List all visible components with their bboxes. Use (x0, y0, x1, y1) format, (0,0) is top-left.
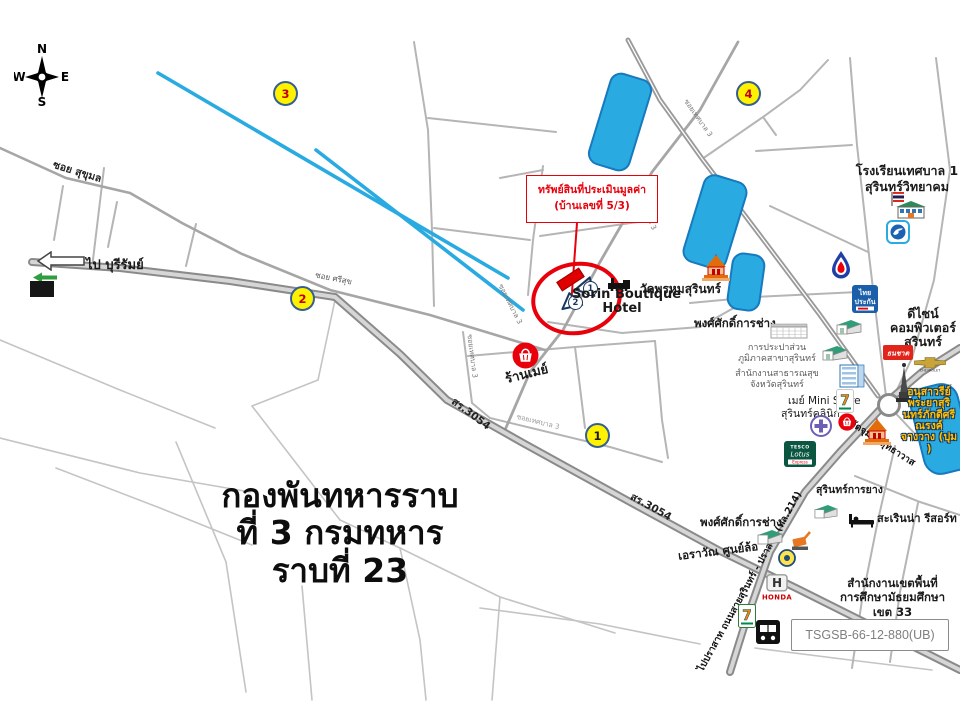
thai-insurance-line1: ไทย (858, 288, 871, 297)
long-building-icon (770, 323, 808, 339)
monument-line5: จางวาง (ปุม (894, 432, 960, 443)
thai-insurance-line2: ประกัน (855, 298, 876, 306)
photo-marker-3: 3 (273, 81, 298, 106)
label-military-base: กองพันทหารราบ ที่ 3 กรมทหาร ราบที่ 23 (160, 477, 520, 589)
thanachart-text: ธนชาต (887, 350, 910, 358)
compass-e: E (61, 70, 69, 84)
label-surin-tire: สุรินทร์การยาง (816, 484, 883, 497)
appraisal-callout-box: ทรัพย์สินที่ประเมินมูลค่า (บ้านเลขที่ 5/… (526, 175, 658, 223)
reference-code: TSGSB-66-12-880(UB) (805, 628, 934, 642)
edu-line1: สำนักงานเขตพื้นที่ (820, 576, 960, 590)
compass-rose-icon: N W E S (14, 42, 70, 108)
clinic-cross-icon (810, 415, 832, 437)
military-line1: กองพันทหารราบ (160, 477, 520, 514)
warehouse-icon-1 (836, 318, 862, 336)
label-design-computer: ดีไซน์ คอมพิวเตอร์ สุรินทร์ (882, 307, 960, 348)
school-icon (888, 190, 928, 220)
label-resort: สะเรินน่า รีสอร์ท (877, 512, 957, 525)
bus-stop-marker-icon (30, 281, 54, 297)
thanachart-sign-icon: ธนชาต (883, 345, 913, 360)
honda-h-glyph: H (772, 576, 782, 590)
school-line1: โรงเรียนเทศบาล 1 (846, 163, 960, 179)
monument-line6: ) (894, 444, 960, 455)
compass-w: W (14, 70, 26, 84)
label-waterworks: การประปาส่วน ภูมิภาคสาขาสุรินทร์ (722, 343, 832, 366)
photo-marker-2: 2 (290, 286, 315, 311)
tesco-line2: Lotus (790, 451, 809, 459)
honda-wordmark: HONDA (762, 594, 792, 602)
military-line3: ราบที่ 23 (160, 552, 520, 589)
edu-line2: การศึกษามัธยมศึกษา (820, 590, 960, 604)
photo-marker-4: 4 (736, 81, 761, 106)
wat-prohm-temple-icon (701, 254, 731, 282)
office-building-icon (838, 363, 866, 389)
label-education-office: สำนักงานเขตพื้นที่ การศึกษามัธยมศึกษา เข… (820, 576, 960, 619)
road-label-to-buriram: ไป บุรีรัมย์ (86, 258, 144, 274)
design-line2: คอมพิวเตอร์ (882, 321, 960, 335)
honda-icon: H HONDA (762, 574, 792, 602)
waterworks-line1: การประปาส่วน (722, 343, 832, 354)
waterworks-line2: ภูมิภาคสาขาสุรินทร์ (722, 354, 832, 365)
photo-marker-3-number: 3 (281, 87, 289, 101)
map-canvas: 1 2 N W E S ไป บุรีรัมย์ ซอย สุขุมล ซอย … (0, 0, 960, 720)
warehouse-icon-4 (757, 528, 783, 546)
bus-icon (756, 620, 780, 644)
tesco-lotus-sign-icon: TESCO Lotus Express (784, 441, 816, 467)
chevrolet-icon: CHEVROLET (914, 354, 946, 372)
to-buriram-arrow-icon (37, 251, 85, 271)
seven-glyph-north: 7 (840, 393, 850, 409)
seven-eleven-icon-south: 7 (738, 604, 756, 628)
photo-marker-4-number: 4 (744, 87, 752, 101)
callout-line2: (บ้านเลขที่ 5/3) (527, 199, 657, 215)
label-wat-prohm: วัดพรหมสุรินทร์ (640, 282, 721, 296)
yellow-logo-icon (778, 549, 796, 567)
chevrolet-text: CHEVROLET (920, 369, 941, 373)
health-line2: จังหวัดสุรินทร์ (722, 380, 832, 391)
compass-n: N (37, 42, 47, 56)
monument-line2: พระยาสุริ (894, 398, 960, 409)
tesco-line3: Express (792, 460, 808, 465)
health-line1: สำนักงานสาธารณสุข (722, 369, 832, 380)
seven-eleven-icon-north: 7 (836, 389, 854, 413)
shop-basket-icon-north (838, 413, 856, 431)
warehouse-icon-2 (822, 344, 848, 362)
design-line1: ดีไซน์ (882, 307, 960, 321)
photo-marker-1-number: 1 (593, 429, 601, 443)
callout-line1: ทรัพย์สินที่ประเมินมูลค่า (527, 183, 657, 199)
hotel-line2: Hotel (572, 302, 672, 316)
label-pongsak-north: พงศ์ศักดิ์การช่าง (694, 317, 776, 331)
reference-code-box: TSGSB-66-12-880(UB) (791, 619, 949, 651)
military-line2: ที่ 3 กรมทหาร (160, 514, 520, 551)
edu-line3: เขต 33 (820, 605, 960, 619)
seven-glyph-south: 7 (742, 608, 752, 624)
label-monument: อนุสาวรีย์ พระยาสุริ นทร์ภักดีศรี ณรงค์ … (894, 387, 960, 455)
photo-marker-2-number: 2 (298, 292, 306, 306)
photo-marker-1: 1 (585, 423, 610, 448)
ptt-flame-icon (831, 251, 851, 279)
bank-icon (886, 220, 910, 244)
label-health-office: สำนักงานสาธารณสุข จังหวัดสุรินทร์ (722, 369, 832, 392)
resort-bed-icon (849, 512, 875, 528)
warehouse-icon-3 (814, 503, 838, 520)
thai-insurance-sign-icon: ไทย ประกัน (852, 285, 878, 313)
wat-jumpol-temple-icon (862, 418, 892, 446)
